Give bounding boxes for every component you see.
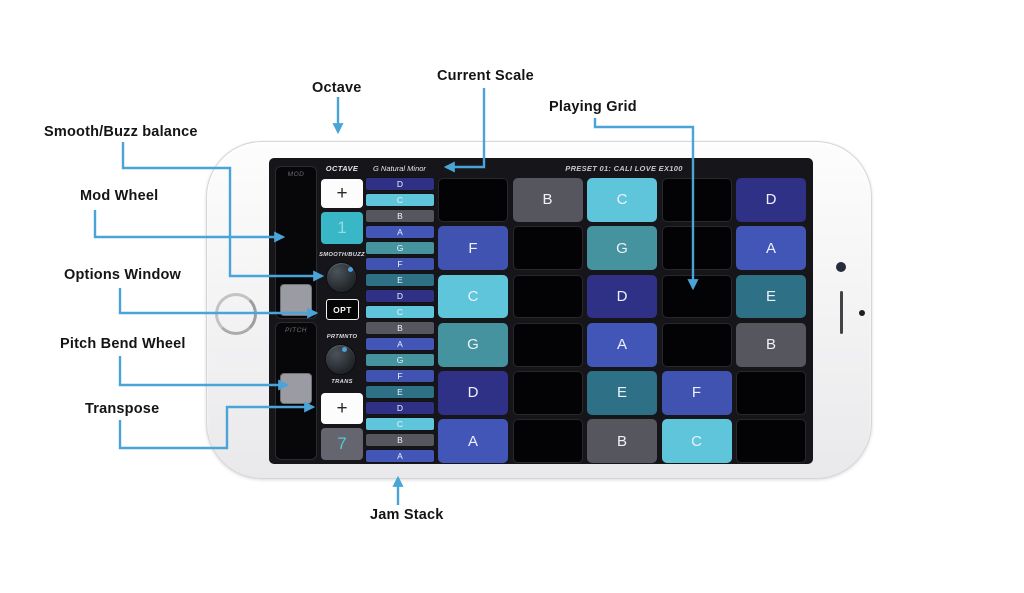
preset-label[interactable]: PRESET 01: CALI LOVE EX100 [509,164,739,173]
grid-pad[interactable]: C [662,419,732,463]
grid-pad[interactable]: G [438,323,508,367]
jam-stack-note[interactable]: A [365,337,435,351]
grid-pad[interactable]: D [587,275,657,319]
grid-pad[interactable]: B [736,323,806,367]
jam-stack-note[interactable]: E [365,385,435,399]
jam-stack-note[interactable]: B [365,321,435,335]
app-screen: OCTAVE G Natural Minor PRESET 01: CALI L… [269,158,813,464]
jam-stack-note[interactable]: A [365,225,435,239]
jam-stack-note[interactable]: F [365,369,435,383]
knob-indicator-icon [342,347,347,352]
grid-pad-empty[interactable] [513,419,583,463]
grid-pad-empty[interactable] [513,371,583,415]
annotation-jam-stack: Jam Stack [370,507,444,523]
sensor-icon [859,310,865,316]
grid-pad[interactable]: E [736,275,806,319]
grid-pad[interactable]: B [513,178,583,222]
grid-pad[interactable]: F [438,226,508,270]
grid-pad[interactable]: A [438,419,508,463]
mod-wheel-handle[interactable] [280,284,312,316]
jam-stack-note[interactable]: D [365,289,435,303]
pitch-wheel-handle[interactable] [280,373,312,404]
annotation-mod-wheel: Mod Wheel [80,188,158,204]
jam-stack-note[interactable]: C [365,305,435,319]
jam-stack-note[interactable]: D [365,401,435,415]
mod-wheel-label: MOD [276,171,316,178]
current-scale-label[interactable]: G Natural Minor [373,164,426,173]
phone-body: OCTAVE G Natural Minor PRESET 01: CALI L… [206,141,872,479]
grid-pad[interactable]: D [736,178,806,222]
home-button [215,293,257,335]
transpose-value: 7 [321,428,363,460]
pitch-bend-wheel[interactable]: PITCH [275,322,317,460]
annotation-octave: Octave [312,80,362,96]
grid-pad-empty[interactable] [662,323,732,367]
front-camera-icon [836,262,846,272]
grid-pad[interactable]: B [587,419,657,463]
octave-value: 1 [321,212,363,244]
grid-pad-empty[interactable] [438,178,508,222]
jam-stack-note[interactable]: B [365,209,435,223]
grid-pad-empty[interactable] [662,275,732,319]
octave-header-label: OCTAVE [321,164,363,173]
jam-stack-note[interactable]: G [365,241,435,255]
jam-stack: DCBAGFEDCBAGFEDCBA [365,177,435,463]
grid-pad[interactable]: G [587,226,657,270]
jam-stack-note[interactable]: B [365,433,435,447]
jam-stack-note[interactable]: C [365,193,435,207]
jam-stack-note[interactable]: D [365,177,435,191]
jam-stack-note[interactable]: C [365,417,435,431]
octave-up-button[interactable]: + [321,179,363,208]
grid-pad-empty[interactable] [513,226,583,270]
knob-indicator-icon [348,267,353,272]
grid-pad-empty[interactable] [736,371,806,415]
grid-pad[interactable]: C [438,275,508,319]
jam-stack-note[interactable]: G [365,353,435,367]
grid-pad-empty[interactable] [662,178,732,222]
annotation-playing-grid: Playing Grid [549,99,637,115]
annotation-current-scale: Current Scale [437,68,534,84]
options-button[interactable]: OPT [326,299,359,320]
grid-pad-empty[interactable] [513,275,583,319]
transpose-up-button[interactable]: + [321,393,363,424]
grid-pad[interactable]: F [662,371,732,415]
annotation-smooth-buzz: Smooth/Buzz balance [44,124,198,140]
grid-pad[interactable]: A [587,323,657,367]
grid-pad[interactable]: C [587,178,657,222]
annotation-options-window: Options Window [64,267,181,283]
grid-pad-empty[interactable] [513,323,583,367]
portamento-knob[interactable] [325,344,356,375]
annotation-pitch-bend: Pitch Bend Wheel [60,336,186,352]
mod-wheel[interactable]: MOD [275,166,317,319]
jam-stack-note[interactable]: E [365,273,435,287]
pitch-wheel-label: PITCH [276,327,316,334]
earpiece-speaker [840,291,843,334]
grid-pad[interactable]: D [438,371,508,415]
smooth-buzz-knob[interactable] [326,262,357,293]
grid-pad-empty[interactable] [662,226,732,270]
jam-stack-note[interactable]: A [365,449,435,463]
playing-grid: BCDFGACDEGABDEFABC [438,178,806,463]
annotated-screenshot: Octave Current Scale Playing Grid Smooth… [0,0,1024,593]
annotation-transpose: Transpose [85,401,159,417]
grid-pad[interactable]: A [736,226,806,270]
grid-pad-empty[interactable] [736,419,806,463]
grid-pad[interactable]: E [587,371,657,415]
jam-stack-note[interactable]: F [365,257,435,271]
